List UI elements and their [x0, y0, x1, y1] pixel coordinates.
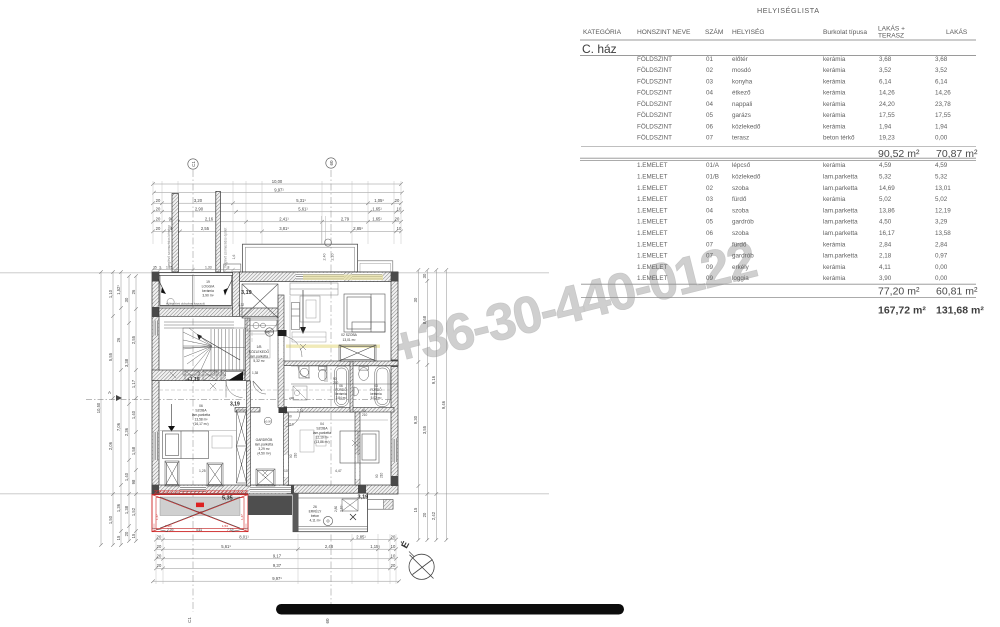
- svg-text:kerámia: kerámia: [823, 123, 846, 130]
- svg-text:7,06: 7,06: [116, 422, 121, 431]
- svg-text:5,55: 5,55: [108, 352, 113, 361]
- svg-text:30: 30: [124, 297, 129, 302]
- svg-text:1,40: 1,40: [124, 472, 129, 481]
- svg-text:01: 01: [706, 56, 714, 63]
- svg-text:04: 04: [706, 101, 714, 108]
- svg-text:6,14: 6,14: [879, 78, 892, 85]
- svg-text:1.EMELET: 1.EMELET: [637, 253, 668, 260]
- svg-text:04: 04: [706, 207, 714, 214]
- svg-text:1,15¹: 1,15¹: [370, 544, 380, 549]
- svg-text:közlekedő: közlekedő: [732, 174, 761, 181]
- svg-text:77,20 m²: 77,20 m²: [878, 286, 920, 298]
- svg-text:4,11: 4,11: [879, 264, 891, 271]
- svg-text:1,94: 1,94: [879, 123, 892, 130]
- svg-text:210: 210: [333, 381, 339, 385]
- svg-text:A: A: [108, 390, 111, 395]
- svg-text:9,97¹: 9,97¹: [274, 187, 284, 192]
- svg-text:1,36: 1,36: [116, 503, 121, 512]
- svg-text:1,05¹: 1,05¹: [374, 198, 384, 203]
- svg-text:20: 20: [124, 531, 129, 536]
- svg-text:3,19: 3,19: [358, 495, 369, 501]
- svg-text:8,01¹: 8,01¹: [239, 534, 249, 539]
- svg-text:szoba: szoba: [732, 230, 749, 237]
- svg-text:erkély: erkély: [732, 264, 750, 271]
- svg-text:1,10: 1,10: [108, 289, 113, 298]
- svg-text:loggia: loggia: [732, 275, 749, 282]
- svg-text:1,33: 1,33: [205, 265, 212, 269]
- svg-text:9,17: 9,17: [273, 554, 282, 559]
- svg-text:2,55: 2,55: [201, 226, 210, 231]
- svg-text:03: 03: [706, 196, 714, 203]
- svg-text:14,26: 14,26: [935, 90, 951, 97]
- svg-text:13,86: 13,86: [879, 207, 895, 214]
- svg-text:06: 06: [706, 230, 714, 237]
- svg-text:LAKÁS +: LAKÁS +: [878, 24, 905, 33]
- svg-text:20: 20: [422, 512, 427, 517]
- svg-text:TERASZ: TERASZ: [878, 33, 904, 40]
- svg-text:2,79: 2,79: [341, 217, 350, 222]
- svg-text:1,47: 1,47: [155, 514, 159, 520]
- svg-text:1.EMELET: 1.EMELET: [637, 174, 668, 181]
- svg-text:4,61: 4,61: [197, 510, 203, 514]
- svg-text:lam.parketta: lam.parketta: [823, 219, 858, 226]
- svg-text:Burkolat típusa: Burkolat típusa: [823, 29, 867, 36]
- svg-text:2,80: 2,80: [334, 506, 338, 512]
- svg-text:2,84: 2,84: [935, 241, 948, 248]
- svg-text:2,40: 2,40: [322, 254, 326, 261]
- svg-text:1.EMELET: 1.EMELET: [637, 264, 668, 271]
- svg-text:2,84: 2,84: [879, 241, 892, 248]
- svg-text:gardrób: gardrób: [732, 219, 754, 226]
- svg-text:3,29: 3,29: [935, 219, 948, 226]
- svg-text:07: 07: [706, 253, 714, 260]
- svg-text:1.EMELET: 1.EMELET: [637, 241, 668, 248]
- svg-text:04: 04: [320, 422, 324, 426]
- svg-text:HONSZINT NEVE: HONSZINT NEVE: [637, 29, 691, 36]
- svg-text:20: 20: [157, 544, 162, 549]
- svg-text:1.EMELET: 1.EMELET: [637, 162, 668, 169]
- svg-text:garázs: garázs: [732, 112, 751, 119]
- svg-text:2,18: 2,18: [879, 253, 892, 260]
- svg-text:terasz: terasz: [732, 135, 749, 142]
- svg-text:étkező: étkező: [732, 90, 751, 97]
- svg-text:SZÁM: SZÁM: [705, 27, 723, 36]
- svg-text:60: 60: [329, 160, 334, 166]
- svg-text:FÖLDSZINT: FÖLDSZINT: [637, 134, 672, 142]
- svg-text:C. ház: C. ház: [582, 42, 617, 56]
- svg-text:15: 15: [116, 535, 121, 540]
- svg-text:meglévő szomszédos kémény: meglévő szomszédos kémény: [167, 225, 171, 268]
- svg-text:07: 07: [706, 135, 714, 142]
- svg-text:3,52: 3,52: [935, 67, 948, 74]
- svg-text:kerámia: kerámia: [823, 101, 846, 108]
- svg-text:kerámia: kerámia: [823, 264, 846, 271]
- svg-text:1,58: 1,58: [131, 446, 136, 455]
- svg-text:5,32: 5,32: [935, 174, 948, 181]
- svg-text:0,00: 0,00: [935, 275, 948, 282]
- svg-text:1.EMELET: 1.EMELET: [637, 207, 668, 214]
- svg-text:lam.parketta: lam.parketta: [313, 431, 331, 435]
- svg-text:C1: C1: [187, 617, 192, 623]
- svg-text:ERKÉLY: ERKÉLY: [309, 509, 323, 514]
- svg-text:lépcső: lépcső: [732, 162, 751, 169]
- svg-text:C1: C1: [191, 161, 196, 167]
- svg-text:01/A: 01/A: [706, 162, 720, 169]
- svg-text:30: 30: [422, 273, 427, 278]
- svg-text:10: 10: [284, 469, 288, 473]
- svg-text:2,36: 2,36: [124, 427, 129, 436]
- svg-text:210: 210: [380, 472, 384, 478]
- svg-text:+36-30-440-0122: +36-30-440-0122: [385, 231, 761, 378]
- svg-text:04: 04: [706, 90, 714, 97]
- svg-text:szoba: szoba: [732, 185, 749, 192]
- svg-text:6,14: 6,14: [935, 78, 948, 85]
- svg-text:17,55: 17,55: [879, 112, 895, 119]
- svg-text:kerámia: kerámia: [823, 196, 846, 203]
- svg-text:lam.parketta: lam.parketta: [255, 443, 273, 447]
- svg-text:4,59: 4,59: [879, 162, 892, 169]
- svg-text:1,25: 1,25: [199, 469, 206, 473]
- svg-text:13,01: 13,01: [935, 185, 951, 192]
- svg-text:+1,15: +1,15: [187, 377, 200, 383]
- svg-text:5,32: 5,32: [879, 174, 892, 181]
- svg-text:2,55: 2,55: [131, 335, 136, 344]
- svg-text:20: 20: [156, 198, 161, 203]
- svg-text:5,32 m²: 5,32 m²: [253, 359, 265, 363]
- svg-text:(13,86 m²): (13,86 m²): [314, 440, 329, 444]
- svg-text:0,00: 0,00: [935, 135, 948, 142]
- svg-text:5,02 m²: 5,02 m²: [371, 396, 382, 400]
- svg-text:01/B: 01/B: [706, 174, 719, 181]
- svg-text:0,00: 0,00: [935, 264, 948, 271]
- svg-text:1,50: 1,50: [108, 515, 113, 524]
- svg-text:10: 10: [391, 544, 396, 549]
- svg-text:15: 15: [413, 507, 418, 512]
- svg-text:5,61¹: 5,61¹: [298, 207, 308, 212]
- svg-text:3,90: 3,90: [879, 275, 892, 282]
- svg-text:fürdő: fürdő: [732, 241, 747, 248]
- svg-text:35: 35: [153, 265, 157, 269]
- svg-text:90: 90: [375, 474, 379, 478]
- svg-text:1,17: 1,17: [131, 379, 136, 388]
- svg-text:02 SZOBA: 02 SZOBA: [341, 333, 358, 337]
- svg-text:lam.parketta: lam.parketta: [823, 185, 858, 192]
- svg-text:1,65¹: 1,65¹: [372, 217, 382, 222]
- svg-text:19,23: 19,23: [879, 135, 895, 142]
- svg-text:9,46: 9,46: [441, 400, 446, 409]
- svg-text:előkészített dobozban kapcsoló: előkészített dobozban kapcsoló: [166, 302, 205, 306]
- svg-text:mosdó: mosdó: [732, 67, 751, 74]
- svg-text:05: 05: [706, 219, 714, 226]
- svg-text:2,90: 2,90: [195, 207, 204, 212]
- svg-text:60: 60: [325, 618, 330, 624]
- svg-text:3,90 m²: 3,90 m²: [202, 294, 214, 298]
- svg-text:19: 19: [206, 280, 210, 284]
- svg-text:(4,50 m²): (4,50 m²): [257, 452, 270, 456]
- svg-text:210: 210: [362, 413, 368, 417]
- svg-text:2,10: 2,10: [297, 409, 303, 413]
- svg-text:26: 26: [116, 337, 121, 342]
- svg-text:9,97¹: 9,97¹: [272, 576, 282, 581]
- svg-text:1,25: 1,25: [166, 265, 173, 269]
- svg-text:3,38: 3,38: [124, 358, 129, 367]
- svg-text:12,19: 12,19: [935, 207, 951, 214]
- svg-text:1.EMELET: 1.EMELET: [637, 230, 668, 237]
- svg-text:2,20¹: 2,20¹: [167, 528, 174, 532]
- svg-text:20: 20: [391, 534, 396, 539]
- svg-text:beton térkő: beton térkő: [823, 135, 855, 142]
- svg-text:kerámia: kerámia: [823, 162, 846, 169]
- svg-text:1,94: 1,94: [935, 123, 948, 130]
- svg-text:20: 20: [156, 226, 161, 231]
- svg-text:30: 30: [413, 297, 418, 302]
- svg-text:02: 02: [706, 67, 714, 74]
- svg-text:06: 06: [199, 404, 203, 408]
- svg-text:kerámia: kerámia: [823, 67, 846, 74]
- svg-text:5,31¹: 5,31¹: [296, 198, 306, 203]
- svg-text:2,10: 2,10: [331, 254, 335, 261]
- svg-text:kerámia: kerámia: [823, 112, 846, 119]
- svg-text:07: 07: [706, 241, 714, 248]
- svg-text:16,17: 16,17: [879, 230, 895, 237]
- svg-text:03: 03: [706, 78, 714, 85]
- svg-text:90: 90: [289, 454, 293, 458]
- svg-text:26: 26: [313, 505, 317, 509]
- svg-text:3,52: 3,52: [879, 67, 892, 74]
- svg-text:20: 20: [156, 217, 161, 222]
- svg-text:1,52¹: 1,52¹: [116, 285, 121, 295]
- svg-text:0,97: 0,97: [935, 253, 948, 260]
- svg-text:FÖLDSZINT: FÖLDSZINT: [637, 122, 672, 130]
- svg-text:lam.parketta: lam.parketta: [823, 207, 858, 214]
- svg-text:2,10²: 2,10²: [340, 505, 344, 512]
- svg-text:3,29 m²: 3,29 m²: [258, 447, 270, 451]
- svg-text:kerámia: kerámia: [823, 56, 846, 63]
- svg-text:1,6: 1,6: [232, 255, 236, 260]
- svg-text:1,52: 1,52: [131, 507, 136, 516]
- svg-text:beton: beton: [311, 514, 319, 518]
- svg-text:meglévő szomszédos épület: meglévő szomszédos épület: [224, 228, 228, 268]
- svg-text:gardrób: gardrób: [732, 253, 754, 260]
- svg-text:13,58: 13,58: [935, 230, 951, 237]
- svg-text:KATEGÓRIA: KATEGÓRIA: [583, 27, 622, 36]
- svg-text:SZOBA: SZOBA: [316, 427, 328, 431]
- svg-text:26: 26: [131, 289, 136, 294]
- svg-text:3,68: 3,68: [879, 56, 892, 63]
- svg-text:5,61¹: 5,61¹: [221, 544, 231, 549]
- svg-text:1,65¹: 1,65¹: [372, 207, 382, 212]
- svg-text:1.EMELET: 1.EMELET: [637, 185, 668, 192]
- svg-text:lam.parketta: lam.parketta: [192, 413, 210, 417]
- svg-text:2,06: 2,06: [108, 441, 113, 450]
- svg-text:20: 20: [391, 563, 396, 568]
- svg-text:lam.parketta: lam.parketta: [823, 174, 858, 181]
- svg-text:konyha: konyha: [732, 78, 753, 85]
- svg-text:3: 3: [159, 265, 161, 269]
- svg-text:1.EMELET: 1.EMELET: [637, 275, 668, 282]
- svg-text:lam.parketta: lam.parketta: [823, 230, 858, 237]
- svg-text:4,50: 4,50: [879, 219, 892, 226]
- svg-text:20: 20: [157, 554, 162, 559]
- svg-text:2,42: 2,42: [431, 511, 436, 520]
- svg-text:14,26: 14,26: [879, 90, 895, 97]
- svg-text:9,37: 9,37: [273, 563, 282, 568]
- svg-text:SZOBA: SZOBA: [195, 409, 207, 413]
- svg-text:167,72 m²: 167,72 m²: [878, 305, 926, 317]
- svg-text:LOGGIA: LOGGIA: [202, 285, 215, 289]
- svg-text:3,68: 3,68: [935, 56, 948, 63]
- svg-text:FÖLDSZINT: FÖLDSZINT: [637, 89, 672, 97]
- svg-text:3,19: 3,19: [230, 402, 240, 408]
- svg-text:FÖLDSZINT: FÖLDSZINT: [637, 100, 672, 108]
- svg-text:20: 20: [395, 198, 400, 203]
- svg-text:4,59: 4,59: [935, 162, 948, 169]
- svg-text:É: É: [399, 540, 412, 551]
- svg-text:1,47: 1,47: [240, 514, 244, 520]
- svg-text:15: 15: [131, 533, 136, 538]
- svg-text:5,02: 5,02: [935, 196, 948, 203]
- svg-text:2,41¹: 2,41¹: [279, 217, 289, 222]
- svg-text:előtér: előtér: [732, 56, 748, 63]
- svg-text:3,55: 3,55: [422, 425, 427, 434]
- svg-text:1,40: 1,40: [131, 410, 136, 419]
- svg-text:HELYISÉG: HELYISÉG: [732, 27, 765, 36]
- svg-text:kerámia: kerámia: [823, 78, 846, 85]
- svg-text:1.EMELET: 1.EMELET: [637, 219, 668, 226]
- svg-text:13,58 m²: 13,58 m²: [194, 418, 208, 422]
- svg-text:közlekedő: közlekedő: [732, 123, 761, 130]
- svg-text:3,19: 3,19: [241, 290, 252, 296]
- svg-text:(16,17 m²): (16,17 m²): [193, 422, 208, 426]
- svg-text:20: 20: [395, 217, 400, 222]
- svg-text:9,16: 9,16: [431, 375, 436, 384]
- svg-text:1.EMELET: 1.EMELET: [637, 196, 668, 203]
- svg-text:HELYISÉGLISTA: HELYISÉGLISTA: [757, 6, 820, 15]
- svg-text:2,48: 2,48: [325, 544, 334, 549]
- svg-text:05: 05: [706, 112, 714, 119]
- svg-text:10: 10: [391, 554, 396, 559]
- svg-text:8: 8: [228, 265, 230, 269]
- svg-text:1,38: 1,38: [124, 505, 129, 514]
- svg-text:4,61: 4,61: [196, 528, 202, 532]
- svg-text:13,01 m²: 13,01 m²: [342, 338, 356, 342]
- svg-text:20: 20: [157, 563, 162, 568]
- svg-text:kerámia: kerámia: [202, 289, 214, 293]
- svg-text:24,20: 24,20: [879, 101, 895, 108]
- svg-text:23,78: 23,78: [935, 101, 951, 108]
- svg-text:10,50: 10,50: [96, 402, 101, 413]
- svg-text:kerámia: kerámia: [823, 241, 846, 248]
- svg-text:1/B: 1/B: [257, 345, 263, 349]
- svg-text:⌀90: ⌀90: [289, 396, 294, 400]
- svg-text:LAKÁS: LAKÁS: [946, 27, 968, 36]
- svg-text:10,00: 10,00: [272, 179, 283, 184]
- svg-text:8,68: 8,68: [422, 315, 427, 324]
- svg-text:lam.parketta: lam.parketta: [823, 253, 858, 260]
- svg-text:06: 06: [706, 123, 714, 130]
- svg-text:60,81 m²: 60,81 m²: [936, 286, 978, 298]
- svg-text:szoba: szoba: [732, 207, 749, 214]
- svg-text:09: 09: [706, 275, 714, 282]
- svg-text:FÖLDSZINT: FÖLDSZINT: [637, 77, 672, 85]
- svg-text:20: 20: [156, 207, 161, 212]
- svg-text:131,68 m²: 131,68 m²: [936, 305, 984, 317]
- svg-text:1,38: 1,38: [252, 371, 258, 375]
- svg-text:17,55: 17,55: [935, 112, 951, 119]
- svg-text:KÖZLEKEDŐ: KÖZLEKEDŐ: [249, 349, 270, 354]
- svg-text:±0,00: ±0,00: [265, 419, 272, 423]
- svg-text:2,16: 2,16: [205, 217, 214, 222]
- svg-text:1,32: 1,32: [238, 303, 244, 307]
- svg-text:90: 90: [288, 415, 292, 419]
- svg-text:kerámia: kerámia: [823, 275, 846, 282]
- svg-text:5,35: 5,35: [222, 496, 233, 502]
- svg-text:14,69: 14,69: [879, 185, 895, 192]
- svg-text:3,20: 3,20: [194, 198, 203, 203]
- svg-text:20: 20: [157, 534, 162, 539]
- svg-text:02: 02: [706, 185, 714, 192]
- svg-text:FÖLDSZINT: FÖLDSZINT: [637, 55, 672, 63]
- svg-text:210: 210: [294, 452, 298, 458]
- svg-text:5,02: 5,02: [879, 196, 892, 203]
- svg-text:98: 98: [131, 479, 136, 484]
- svg-text:2,84 m²: 2,84 m²: [336, 396, 347, 400]
- svg-text:kerámia: kerámia: [823, 90, 846, 97]
- svg-text:fürdő: fürdő: [732, 196, 747, 203]
- svg-text:3,81¹: 3,81¹: [279, 226, 289, 231]
- svg-text:2,85¹: 2,85¹: [353, 226, 363, 231]
- svg-text:2,85¹: 2,85¹: [356, 534, 366, 539]
- svg-text:FÖLDSZINT: FÖLDSZINT: [637, 111, 672, 119]
- svg-text:7,32¹: 7,32¹: [227, 528, 234, 532]
- svg-text:09: 09: [706, 264, 714, 271]
- svg-text:FÖLDSZINT: FÖLDSZINT: [637, 66, 672, 74]
- svg-text:4,11 m²: 4,11 m²: [310, 519, 322, 523]
- svg-text:nappali: nappali: [732, 101, 752, 108]
- svg-text:GARDRÓB: GARDRÓB: [256, 437, 273, 442]
- svg-text:4,47: 4,47: [335, 469, 342, 473]
- svg-text:9,30: 9,30: [413, 415, 418, 424]
